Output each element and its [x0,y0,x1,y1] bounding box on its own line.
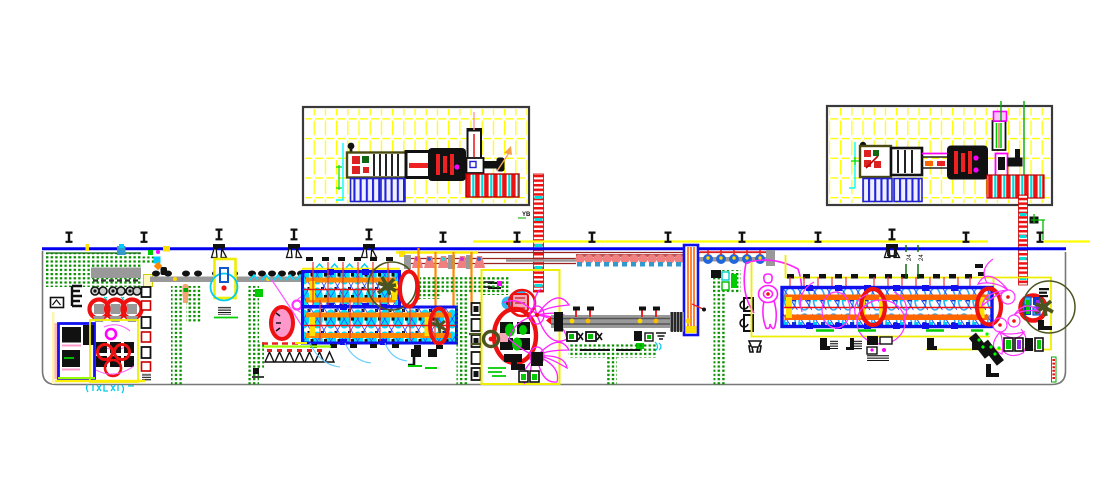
svg-text:24: 24 [919,254,925,261]
svg-text:YB: YB [522,212,531,218]
svg-text:24: 24 [907,254,913,261]
